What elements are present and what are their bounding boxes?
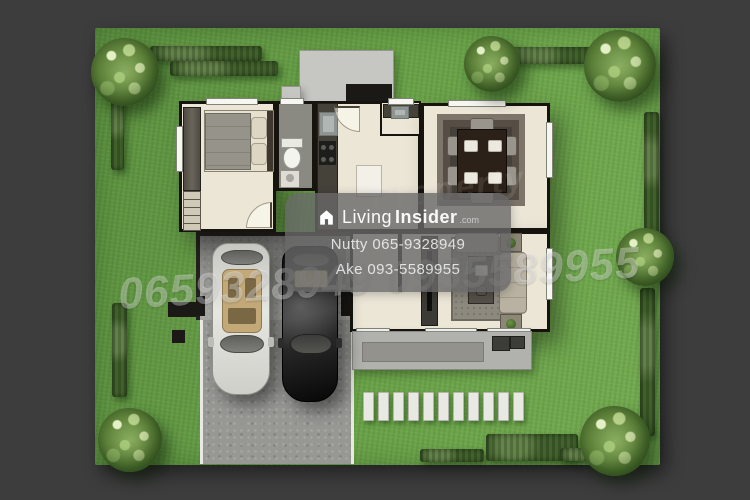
ac-unit-2 bbox=[510, 336, 525, 349]
car-black-windshield bbox=[290, 334, 332, 354]
bed-pillow-2 bbox=[251, 143, 267, 165]
car-silver-windshield bbox=[220, 335, 264, 353]
brand-insider: Insider bbox=[395, 207, 458, 228]
car-mirror bbox=[268, 337, 274, 347]
stepping-stone bbox=[423, 392, 434, 421]
watermark-badge: Living Insider .com Nutty 065-9328949 Ak… bbox=[285, 193, 511, 292]
bathroom-sink bbox=[280, 170, 300, 188]
tree-top-right bbox=[584, 30, 656, 102]
window-bathroom-top bbox=[280, 98, 304, 105]
living-insider-logo: Living Insider .com bbox=[317, 207, 479, 228]
stepping-stone bbox=[378, 392, 389, 421]
stepping-stone bbox=[438, 392, 449, 421]
tree-top-middle bbox=[464, 36, 520, 92]
window-dining-right bbox=[546, 122, 553, 178]
brand-tld: .com bbox=[460, 215, 480, 225]
stepping-stone bbox=[453, 392, 464, 421]
stepping-stone bbox=[393, 392, 404, 421]
hedge-right-upper bbox=[644, 112, 659, 234]
tree-bottom-left bbox=[98, 408, 162, 472]
tree-top-left bbox=[91, 38, 159, 106]
brand-living: Living bbox=[342, 207, 392, 228]
house-logo-icon bbox=[317, 208, 336, 227]
hedge-right-lower bbox=[640, 288, 655, 436]
bed-headboard bbox=[267, 111, 273, 171]
stepping-stone bbox=[468, 392, 479, 421]
stepping-stone bbox=[363, 392, 374, 421]
window-bedroom-top bbox=[206, 98, 258, 105]
window-bedroom-left bbox=[176, 126, 183, 172]
wardrobe bbox=[183, 107, 201, 191]
bed-blanket bbox=[205, 113, 251, 170]
stepping-stone bbox=[498, 392, 509, 421]
hedge-bottom-1 bbox=[420, 449, 484, 462]
place-setting bbox=[488, 140, 502, 152]
window-utility-top bbox=[388, 98, 414, 105]
car-mirror bbox=[278, 338, 284, 348]
toilet-bowl bbox=[283, 147, 301, 169]
bed bbox=[204, 110, 274, 172]
shelf-unit bbox=[183, 191, 201, 231]
stepping-stone bbox=[513, 392, 524, 421]
ac-unit-1 bbox=[492, 336, 510, 351]
bed-pillow-1 bbox=[251, 117, 267, 139]
stove bbox=[319, 141, 336, 165]
car-mirror bbox=[336, 338, 342, 348]
terrace-inner-panel bbox=[362, 342, 484, 362]
hedge-top-left-1 bbox=[150, 46, 262, 61]
car-mirror bbox=[208, 337, 214, 347]
hedge-top-left-2 bbox=[170, 61, 278, 76]
floor-plan-image: Property 0659328949 0935589955 Living In… bbox=[0, 0, 750, 500]
gate-post bbox=[172, 330, 185, 343]
place-setting bbox=[464, 140, 478, 152]
stepping-stone bbox=[408, 392, 419, 421]
window-dining-top bbox=[448, 100, 506, 107]
contact-line-2: Ake 093-5589955 bbox=[336, 261, 460, 278]
tree-bottom-right bbox=[580, 406, 650, 476]
contact-line-1: Nutty 065-9328949 bbox=[331, 236, 465, 253]
utility-sink bbox=[391, 106, 409, 119]
stepping-stone bbox=[483, 392, 494, 421]
